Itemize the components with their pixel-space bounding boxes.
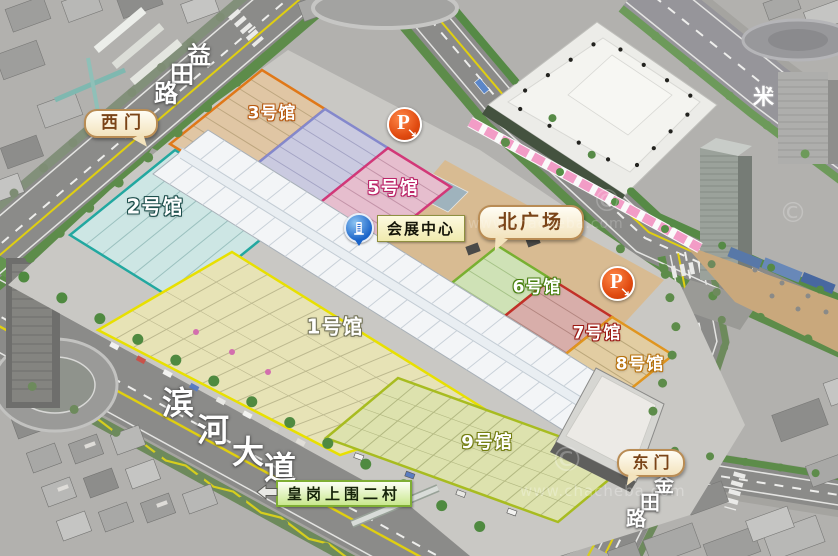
hall-label-1[interactable]: 1号馆 xyxy=(307,311,364,340)
convention-center-label: 会展中心 xyxy=(377,215,465,242)
convention-center-map: 益田路 滨河大道 金田路 1号馆 2号馆 3号馆 5号馆 6号馆 7号馆 8号馆… xyxy=(0,0,838,556)
hall-label-3[interactable]: 3号馆 xyxy=(248,99,297,124)
map-canvas xyxy=(0,0,838,556)
left-arrow-icon xyxy=(256,484,278,504)
convention-center-marker[interactable]: 会展中心 xyxy=(344,213,465,243)
west-gate-label: 西门 xyxy=(101,113,147,133)
parking-icon-north[interactable]: P ↘ xyxy=(387,107,422,142)
arrow-down-right-icon: ↘ xyxy=(407,126,417,140)
metro-icon[interactable]: 米 xyxy=(753,81,774,111)
building-icon xyxy=(344,213,374,243)
arrow-down-right-icon: ↘ xyxy=(620,285,630,299)
bubble-west-gate[interactable]: 西门 xyxy=(84,109,158,138)
hall-label-5[interactable]: 5号馆 xyxy=(367,174,419,200)
hall-label-2[interactable]: 2号馆 xyxy=(127,191,184,220)
parking-icon-east[interactable]: P ↘ xyxy=(600,266,635,301)
bubble-north-plaza[interactable]: 北广场 xyxy=(478,205,584,240)
hall-label-7[interactable]: 7号馆 xyxy=(573,319,622,344)
hall-label-9[interactable]: 9号馆 xyxy=(461,428,513,454)
bubble-east-gate[interactable]: 东门 xyxy=(617,449,685,477)
hall-label-8[interactable]: 8号馆 xyxy=(616,350,665,375)
village-sign-label: 皇岗上围二村 xyxy=(276,480,412,507)
north-plaza-label: 北广场 xyxy=(498,211,564,233)
village-sign[interactable]: 皇岗上围二村 xyxy=(256,480,412,507)
east-gate-label: 东门 xyxy=(632,453,674,472)
hall-label-6[interactable]: 6号馆 xyxy=(513,273,562,298)
